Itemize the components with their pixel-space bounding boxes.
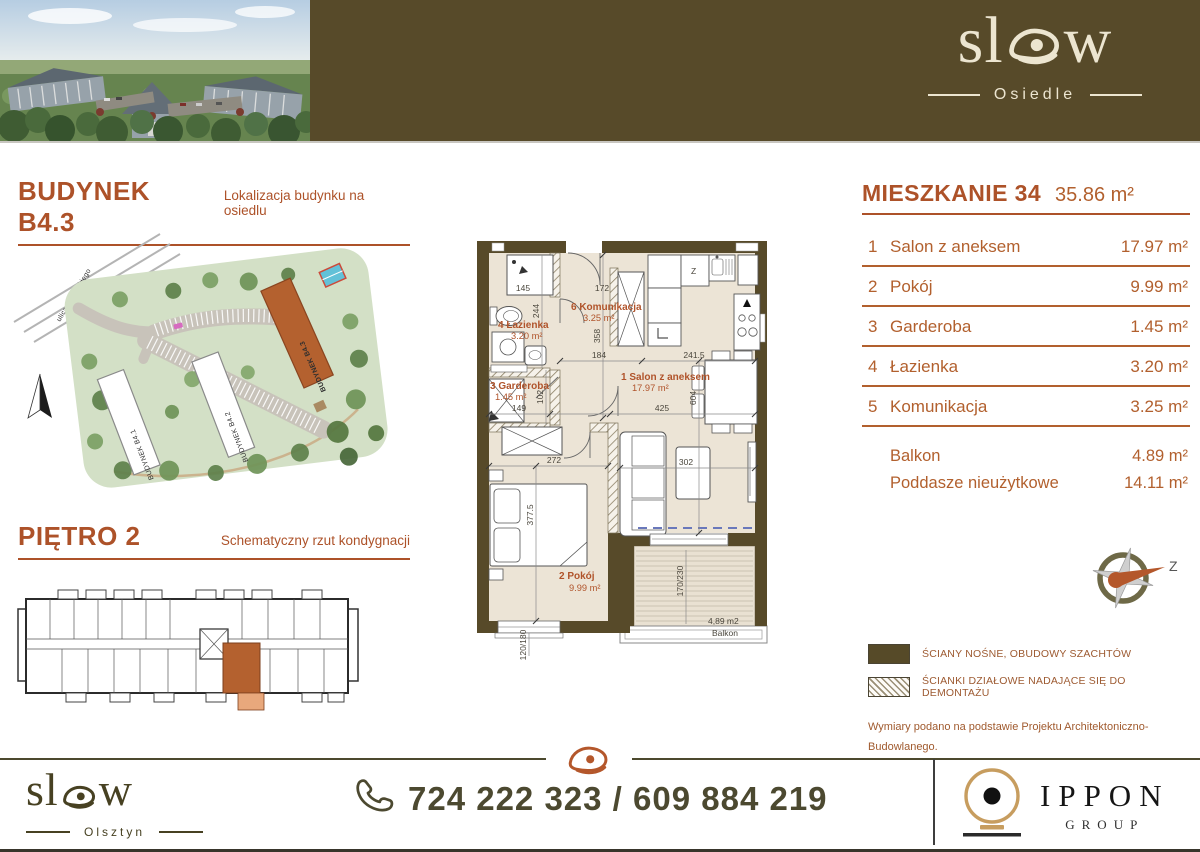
apartment-total-area: 35.86 m² xyxy=(1055,184,1134,207)
hatched-wall-swatch-icon xyxy=(868,677,910,697)
apartment-title: MIESZKANIE 34 xyxy=(862,180,1041,207)
solid-wall-swatch-icon xyxy=(868,644,910,664)
slow-olsztyn-logo: sl w Olsztyn xyxy=(26,765,203,839)
svg-text:244: 244 xyxy=(531,304,541,318)
table-row: 4 Łazienka 3.20 m² xyxy=(862,347,1190,387)
footer-divider-right xyxy=(632,758,1200,760)
logo-rule-left xyxy=(26,831,70,833)
svg-text:3.20 m²: 3.20 m² xyxy=(511,331,543,341)
svg-text:9.99 m²: 9.99 m² xyxy=(569,583,601,593)
table-row: 5 Komunikacja 3.25 m² xyxy=(862,387,1190,427)
extras-list: Balkon 4.89 m² Poddasze nieużytkowe 14.1… xyxy=(862,443,1190,497)
floor-schematic xyxy=(10,577,430,737)
list-item: Poddasze nieużytkowe 14.11 m² xyxy=(890,470,1188,497)
bed-group xyxy=(489,470,587,580)
table-row: 1 Salon z aneksem 17.97 m² xyxy=(862,227,1190,267)
balcony-area-label: 4,89 m2 xyxy=(708,616,739,626)
table-row: 2 Pokój 9.99 m² xyxy=(862,267,1190,307)
svg-text:172: 172 xyxy=(595,283,609,293)
room-table: 1 Salon z aneksem 17.97 m² 2 Pokój 9.99 … xyxy=(862,227,1190,427)
svg-text:184: 184 xyxy=(592,350,606,360)
phone-contact: 724 222 323 / 609 884 219 xyxy=(352,775,828,822)
slow-eye-icon xyxy=(61,771,97,821)
aerial-render-photo xyxy=(0,0,310,141)
compass-icon: Z xyxy=(1083,531,1193,631)
header-band: sl w Osiedle xyxy=(310,0,1200,141)
apartment-summary: MIESZKANIE 34 35.86 m² 1 Salon z aneksem… xyxy=(862,180,1190,497)
ippon-circle-icon xyxy=(956,763,1028,848)
logo-sub: Osiedle xyxy=(994,86,1076,104)
brochure-page: sl w Osiedle BUDYNEK B4.3 Lokalizacja bu… xyxy=(0,0,1200,852)
apartment-floor-plan: Z xyxy=(462,228,794,667)
svg-text:1 Salon z aneksem: 1 Salon z aneksem xyxy=(621,372,710,383)
svg-text:170/230: 170/230 xyxy=(675,565,685,596)
logo-rule-right xyxy=(159,831,203,833)
coffee-table xyxy=(676,447,710,499)
legend: ŚCIANY NOŚNE, OBUDOWY SZACHTÓW ŚCIANKI D… xyxy=(868,644,1192,710)
table-row: 3 Garderoba 1.45 m² xyxy=(862,307,1190,347)
list-item: Balkon 4.89 m² xyxy=(890,443,1188,470)
svg-text:302: 302 xyxy=(679,457,693,467)
svg-text:17.97 m²: 17.97 m² xyxy=(632,383,669,393)
floor-section-header: PIĘTRO 2 Schematyczny rzut kondygnacji xyxy=(18,521,410,560)
svg-text:358: 358 xyxy=(592,329,602,343)
ippon-sub: GROUP xyxy=(1040,817,1170,833)
apartment-title-rule xyxy=(862,213,1190,215)
unit-34-highlight xyxy=(223,643,260,693)
svg-text:3.25 m²: 3.25 m² xyxy=(583,313,615,323)
svg-text:272: 272 xyxy=(547,455,561,465)
svg-text:145: 145 xyxy=(516,283,530,293)
footer-separator xyxy=(933,759,935,845)
svg-text:241.5: 241.5 xyxy=(683,350,705,360)
map-compass-icon xyxy=(28,374,52,418)
legend-item-partition: ŚCIANKI DZIAŁOWE NADAJĄCE SIĘ DO DEMONTA… xyxy=(868,675,1192,699)
floor-subtitle: Schematyczny rzut kondygnacji xyxy=(221,533,410,548)
footer: sl w Olsztyn 724 222 323 / 609 884 219 xyxy=(0,757,1200,849)
svg-text:120/180: 120/180 xyxy=(518,629,528,660)
svg-text:604: 604 xyxy=(688,391,698,405)
balcony-door xyxy=(650,534,728,545)
legend-item-loadbearing: ŚCIANY NOŚNE, OBUDOWY SZACHTÓW xyxy=(868,644,1192,664)
phone-numbers: 724 222 323 / 609 884 219 xyxy=(408,780,828,818)
footer-divider-left xyxy=(0,758,546,760)
phone-icon xyxy=(352,775,394,822)
floor-title-rule xyxy=(18,558,410,560)
svg-text:4 Łazienka: 4 Łazienka xyxy=(498,320,549,331)
unit-34-balcony xyxy=(238,693,264,710)
tv xyxy=(748,442,756,502)
svg-text:149: 149 xyxy=(512,403,526,413)
balcony-name-label: Balkon xyxy=(712,628,738,638)
logo-sub: Olsztyn xyxy=(84,825,145,839)
logo-text-sl: sl xyxy=(958,4,1004,77)
header-divider xyxy=(0,141,1200,143)
compass-z-label: Z xyxy=(1169,558,1178,574)
bath-sink xyxy=(525,346,546,365)
svg-text:377.5: 377.5 xyxy=(525,504,535,526)
svg-text:2 Pokój: 2 Pokój xyxy=(559,571,595,582)
slow-eye-icon xyxy=(1006,12,1062,82)
svg-text:3 Garderoba: 3 Garderoba xyxy=(490,381,549,392)
svg-text:1.45 m²: 1.45 m² xyxy=(495,392,527,402)
balcony-deck xyxy=(620,546,767,643)
svg-text:6 Komunikacja: 6 Komunikacja xyxy=(571,302,642,313)
building-subtitle: Lokalizacja budynku na osiedlu xyxy=(224,188,410,218)
logo-text-w: w xyxy=(1064,4,1113,77)
site-map: ulica Kordeckiego xyxy=(8,226,408,517)
svg-text:425: 425 xyxy=(655,403,669,413)
slow-osiedle-logo: sl w Osiedle xyxy=(895,6,1175,104)
floor-title: PIĘTRO 2 xyxy=(18,521,140,552)
ippon-name: IPPON xyxy=(1040,778,1170,814)
logo-rule-left xyxy=(928,94,980,96)
logo-rule-right xyxy=(1090,94,1142,96)
fridge-z-label: Z xyxy=(691,266,696,276)
ippon-group-logo: IPPON GROUP xyxy=(956,763,1170,848)
